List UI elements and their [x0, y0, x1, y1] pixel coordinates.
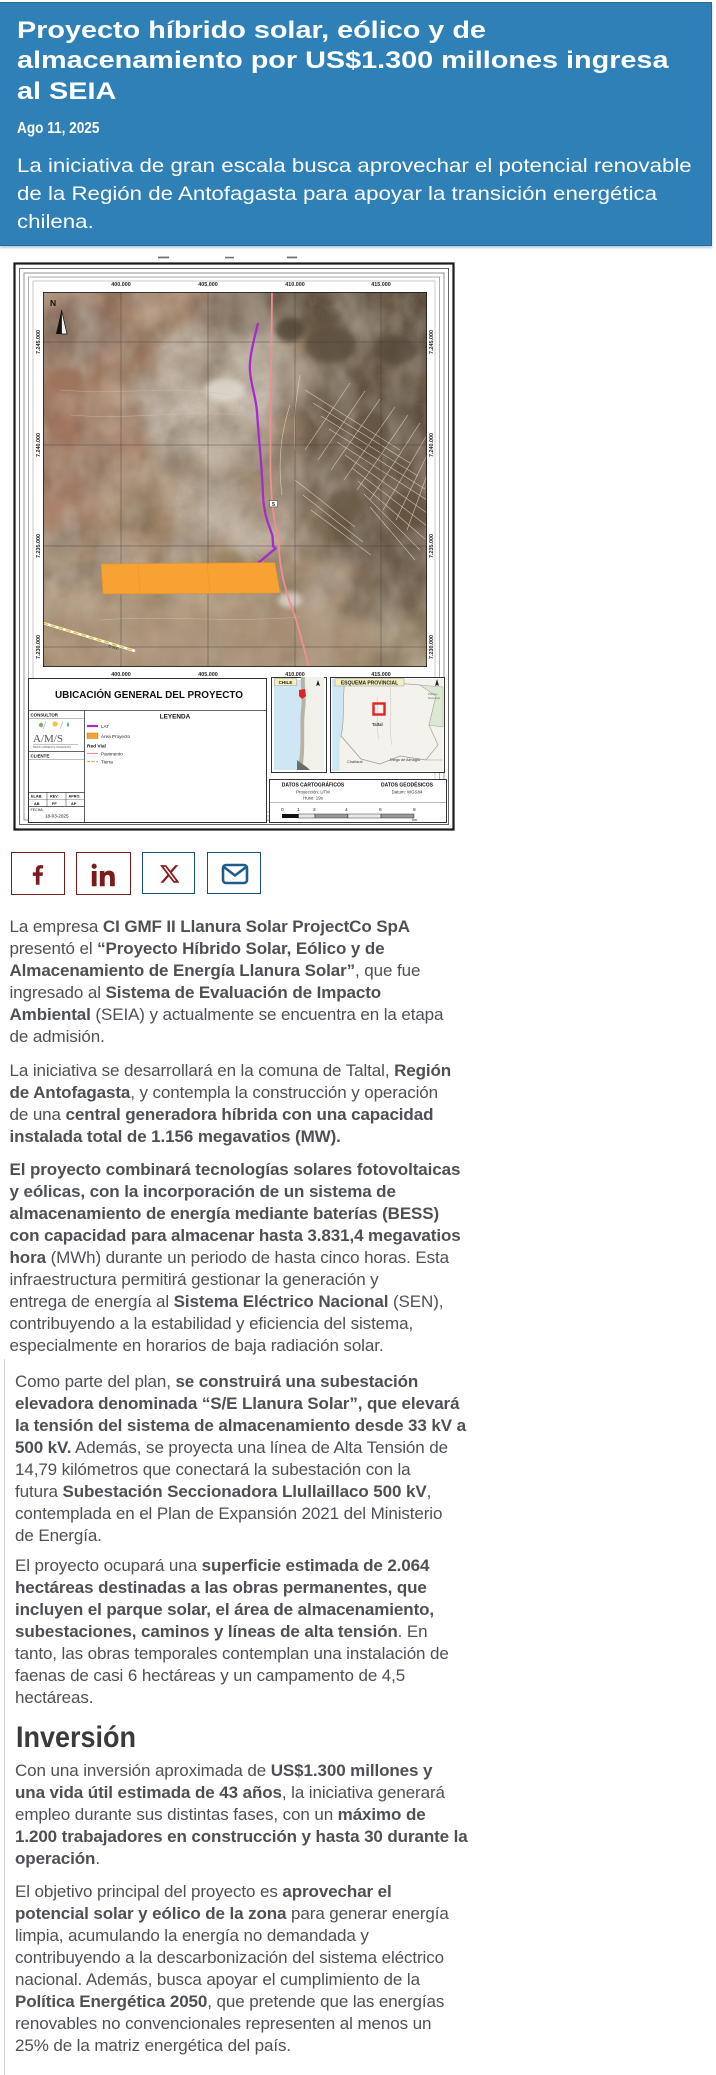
- svg-text:6: 6: [379, 807, 382, 813]
- svg-text:400.000: 400.000: [111, 282, 131, 288]
- svg-text:4: 4: [345, 807, 348, 813]
- svg-text:7.245.000: 7.245.000: [429, 330, 435, 354]
- svg-text:405.000: 405.000: [198, 282, 218, 288]
- svg-text:AB: AB: [34, 802, 40, 806]
- svg-text:AP: AP: [71, 802, 77, 806]
- svg-text:18-03-2025: 18-03-2025: [45, 814, 69, 819]
- svg-text:7.230.000: 7.230.000: [36, 635, 42, 659]
- svg-text:410.000: 410.000: [285, 282, 305, 288]
- svg-text:ELAB.: ELAB.: [31, 795, 42, 799]
- svg-text:km: km: [412, 817, 418, 822]
- svg-text:FECHA:: FECHA:: [31, 808, 44, 812]
- svg-text:LAT: LAT: [101, 724, 109, 729]
- svg-text:Nacional: Nacional: [428, 696, 440, 700]
- svg-text:MEDIO AMBIENTE INGENIERÍA: MEDIO AMBIENTE INGENIERÍA: [33, 745, 71, 749]
- svg-text:A/M/S: A/M/S: [33, 733, 63, 745]
- svg-text:415.000: 415.000: [371, 282, 391, 288]
- svg-text:Taltal: Taltal: [372, 722, 383, 727]
- svg-text:Datum: WGS84: Datum: WGS84: [392, 790, 423, 795]
- svg-text:0: 0: [281, 807, 284, 813]
- svg-text:CLIENTE: CLIENTE: [31, 754, 50, 759]
- svg-text:DATOS CARTOGRÁFICOS: DATOS CARTOGRÁFICOS: [282, 782, 345, 789]
- svg-text:400.000: 400.000: [111, 672, 131, 678]
- svg-text:5: 5: [272, 502, 275, 508]
- svg-text:Red Vial: Red Vial: [87, 744, 106, 750]
- svg-text:7.230.000: 7.230.000: [429, 635, 435, 659]
- svg-text:CONSULTOR: CONSULTOR: [31, 713, 59, 718]
- svg-text:LEYENDA: LEYENDA: [160, 714, 191, 721]
- svg-text:8: 8: [413, 807, 416, 813]
- svg-text:CHILE: CHILE: [279, 680, 293, 685]
- svg-text:1: 1: [297, 807, 300, 813]
- svg-text:Diego de Almagro: Diego de Almagro: [390, 758, 420, 762]
- svg-text:REV.: REV.: [50, 795, 59, 799]
- svg-text:UBICACIÓN GENERAL DEL PROYECTO: UBICACIÓN GENERAL DEL PROYECTO: [55, 688, 243, 701]
- svg-text:7.245.000: 7.245.000: [36, 330, 42, 354]
- svg-text:7.240.000: 7.240.000: [429, 433, 435, 457]
- svg-text:Proyección: UTM: Proyección: UTM: [296, 790, 330, 795]
- svg-text:Chañaral: Chañaral: [347, 760, 363, 764]
- svg-text:N: N: [50, 298, 56, 308]
- svg-text:APRO.: APRO.: [69, 795, 81, 799]
- svg-text:FF: FF: [52, 802, 57, 806]
- svg-text:Área Proyecto: Área Proyecto: [101, 733, 131, 739]
- svg-text:7.240.000: 7.240.000: [36, 433, 42, 457]
- svg-text:DATOS GEODÉSICOS: DATOS GEODÉSICOS: [381, 781, 434, 789]
- svg-text:2: 2: [313, 807, 316, 813]
- svg-text:7.235.000: 7.235.000: [429, 534, 435, 558]
- svg-text:Huso: 19s: Huso: 19s: [303, 796, 324, 801]
- svg-text:Tierra: Tierra: [101, 760, 113, 765]
- svg-text:7.235.000: 7.235.000: [36, 534, 42, 558]
- svg-text:ESQUEMA PROVINCIAL: ESQUEMA PROVINCIAL: [341, 681, 398, 687]
- svg-text:Pavimento: Pavimento: [101, 752, 123, 757]
- svg-text:405.000: 405.000: [198, 672, 218, 678]
